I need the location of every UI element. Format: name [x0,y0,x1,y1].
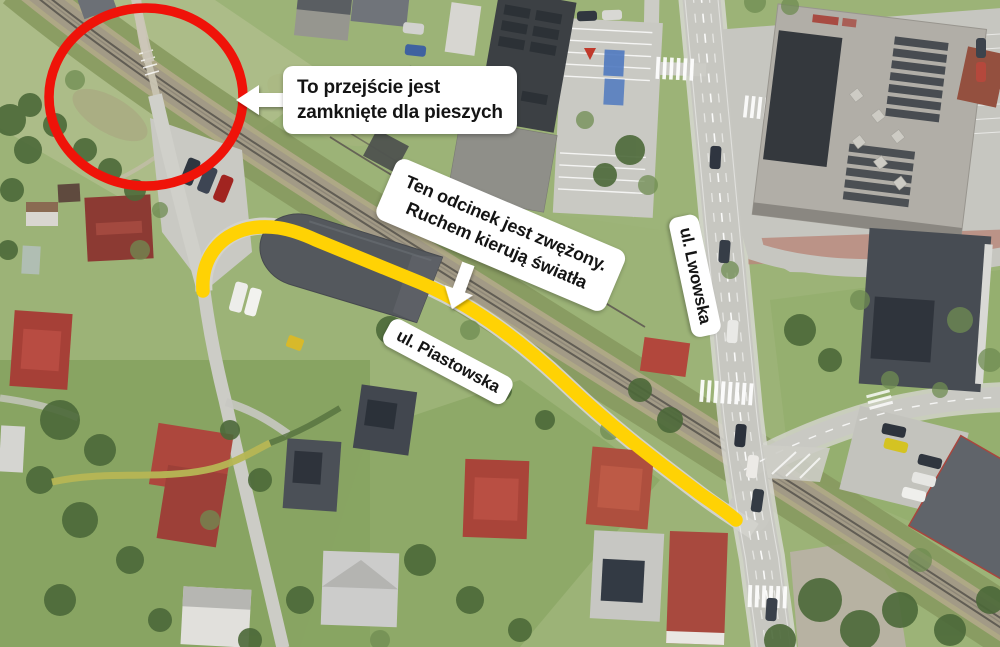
house [590,530,665,622]
house [859,228,994,392]
house [640,337,690,377]
house [463,459,530,539]
house [666,531,728,645]
house [353,384,417,455]
closed-crossing-note: To przejście jest zamknięte dla pieszych [283,66,517,134]
closed-crossing-note-line1: To przejście jest [297,75,503,100]
house [9,310,72,390]
closed-crossing-note-line2: zamknięte dla pieszych [297,100,503,125]
house [283,438,342,512]
annotated-satellite-map: To przejście jest zamknięte dla pieszych… [0,0,1000,647]
building-mall [752,4,986,240]
house [321,551,400,628]
disabled-parking-spot [603,49,624,76]
